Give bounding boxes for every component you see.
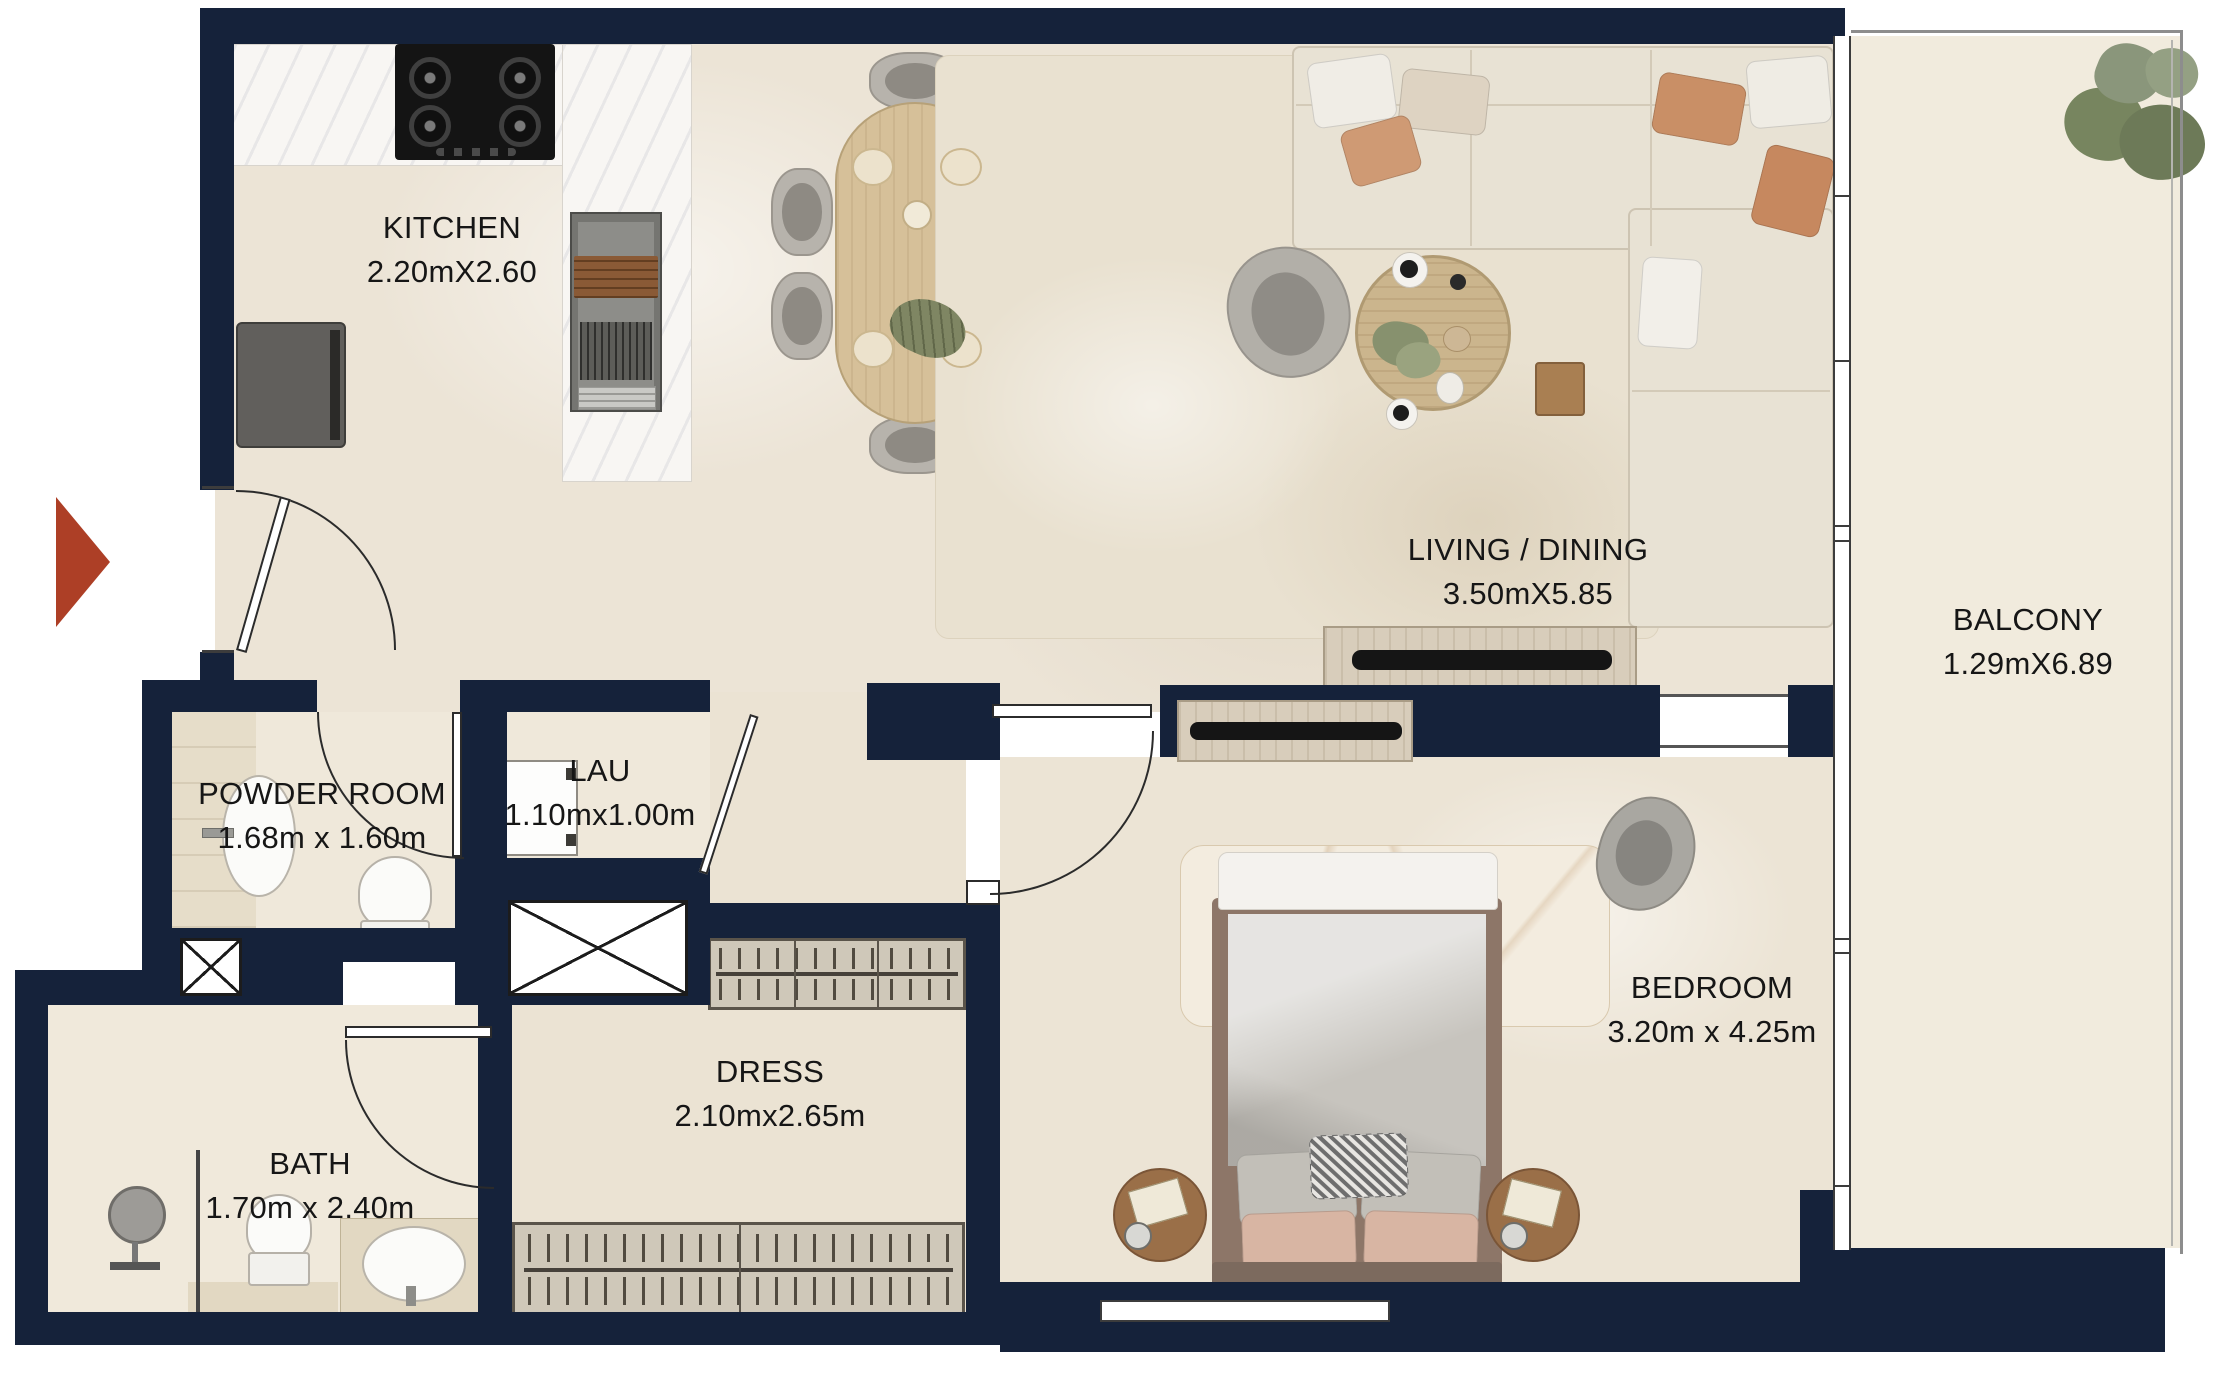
burner-icon [499, 57, 541, 99]
bath-tile-strip [188, 1282, 338, 1312]
bed-foot-blanket [1218, 852, 1498, 910]
room-dims: 2.20mX2.60 [367, 250, 537, 294]
entrance-arrow-icon [56, 497, 110, 627]
burner-icon [409, 57, 451, 99]
bedroom-door-leaf [992, 704, 1152, 718]
wall-balcony-bottom [1845, 1248, 2165, 1352]
window-balcony-column [1833, 36, 1851, 1250]
window-mullion [1833, 360, 1851, 362]
bed-duvet [1228, 914, 1486, 1166]
side-table [1535, 362, 1585, 416]
window-bedroom-bottom [1100, 1300, 1390, 1322]
room-dims: 2.10mx2.65m [674, 1094, 865, 1138]
wall-dress-right [966, 905, 1000, 1312]
burner-icon [499, 105, 541, 147]
wall-powder-bottom [142, 928, 343, 1005]
wall-top [200, 8, 1845, 44]
wardrobe-bottom [512, 1222, 965, 1317]
wall-left-upper [200, 8, 234, 490]
bed-pillow-accent [1309, 1132, 1409, 1199]
wall-bath-top-left [15, 970, 142, 1005]
room-dims: 3.20m x 4.25m [1608, 1010, 1817, 1054]
window-mullion [1833, 952, 1851, 954]
room-label-kitchen: KITCHEN 2.20mX2.60 [367, 206, 537, 294]
door-jamb [202, 650, 234, 653]
table-vase [1436, 372, 1464, 404]
sink-tray [578, 386, 656, 410]
hob-knobs [436, 148, 516, 156]
wardrobe-top [708, 938, 966, 1010]
balcony-railing-right [2180, 30, 2183, 1254]
tv-bedroom [1190, 722, 1402, 740]
room-name: BATH [206, 1142, 415, 1186]
fridge-handle [330, 330, 340, 440]
coffee-cup [1400, 260, 1418, 278]
hanger-rail [716, 972, 958, 976]
shower-head [108, 1186, 166, 1244]
shower-base [110, 1262, 160, 1270]
wardrobe-divider [877, 941, 879, 1007]
place-setting [852, 148, 894, 186]
wall-corridor-stub [867, 683, 1000, 760]
bath-faucet [406, 1286, 416, 1306]
powder-door-leaf [452, 712, 462, 857]
room-label-bath: BATH 1.70m x 2.40m [206, 1142, 415, 1230]
cutting-board [574, 256, 658, 298]
shaft-icon [508, 900, 688, 996]
balcony-railing-inner [2171, 40, 2173, 1246]
window-mullion [1833, 525, 1851, 527]
coffee-bowl [1443, 326, 1471, 352]
wardrobe-divider [794, 941, 796, 1007]
dining-chair [771, 272, 833, 360]
shaft-icon [180, 938, 242, 996]
sink-drain-grid [580, 322, 652, 380]
door-jamb [202, 486, 234, 489]
coffee-cup [1393, 405, 1409, 421]
place-setting [852, 330, 894, 368]
window-mullion [1833, 938, 1851, 940]
bath-door-leaf [345, 1026, 492, 1038]
room-name: DRESS [674, 1050, 865, 1094]
room-dims: 1.70m x 2.40m [206, 1186, 415, 1230]
wall-bath-left [15, 970, 48, 1345]
sofa-pillow [1745, 55, 1833, 130]
balcony-railing-top [1851, 30, 2183, 33]
hanger-ticks [719, 948, 956, 969]
powder-toilet-bowl [358, 856, 432, 930]
floor-plan: KITCHEN 2.20mX2.60 LIVING / DINING 3.50m… [0, 0, 2228, 1384]
dining-chair [771, 168, 833, 256]
wall-laundry-top [507, 680, 710, 712]
room-dims: 1.29mX6.89 [1943, 642, 2113, 686]
wall-corridor-band [680, 903, 970, 938]
bath-toilet-tank [248, 1252, 310, 1286]
wall-bottom-left [15, 1312, 1000, 1345]
room-label-living-dining: LIVING / DINING 3.50mX5.85 [1408, 528, 1648, 616]
room-label-balcony: BALCONY 1.29mX6.89 [1943, 598, 2113, 686]
wardrobe-divider [739, 1225, 741, 1314]
place-setting [940, 148, 982, 186]
room-name: POWDER ROOM [198, 772, 446, 816]
room-name: LIVING / DINING [1408, 528, 1648, 572]
shower-glass [196, 1150, 200, 1312]
nightstand-clock [1500, 1222, 1528, 1250]
sofa-seam [1632, 390, 1830, 392]
window-mullion [1833, 1185, 1851, 1187]
wall-powder-bottom [343, 928, 495, 962]
coffee-cup [1450, 274, 1466, 290]
room-dims: 1.68m x 1.60m [198, 816, 446, 860]
room-label-dress: DRESS 2.10mx2.65m [674, 1050, 865, 1138]
table-bowl [902, 200, 932, 230]
window-living-gap [1660, 694, 1788, 748]
room-label-laundry: LAU 1.10mx1.00m [504, 749, 695, 837]
tv-living [1352, 650, 1612, 670]
room-name: LAU [504, 749, 695, 793]
hanger-ticks [719, 979, 956, 1000]
room-label-bedroom: BEDROOM 3.20m x 4.25m [1608, 966, 1817, 1054]
room-name: KITCHEN [367, 206, 537, 250]
room-dims: 3.50mX5.85 [1408, 572, 1648, 616]
room-label-powder-room: POWDER ROOM 1.68m x 1.60m [198, 772, 446, 860]
sofa-pillow [1306, 52, 1398, 129]
room-dims: 1.10mx1.00m [504, 793, 695, 837]
nightstand-clock [1124, 1222, 1152, 1250]
burner-icon [409, 105, 451, 147]
room-name: BALCONY [1943, 598, 2113, 642]
window-mullion [1833, 195, 1851, 197]
window-mullion [1833, 540, 1851, 542]
room-name: BEDROOM [1608, 966, 1817, 1010]
sofa-seam [1650, 50, 1652, 246]
sofa-pillow [1637, 256, 1703, 350]
